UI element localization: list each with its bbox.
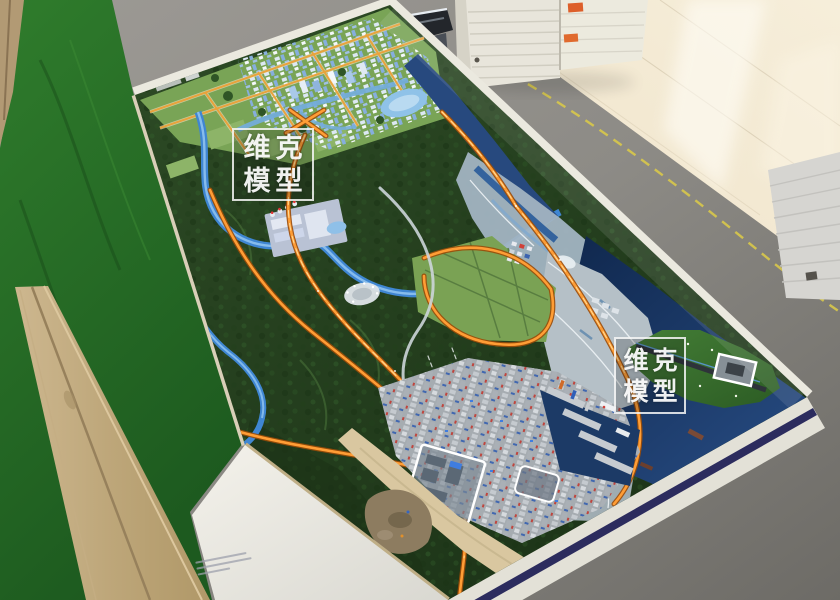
storage-crates-top	[455, 0, 648, 92]
photo-of-scale-model: 维克 模型 维克 模型	[0, 0, 840, 600]
crate-label	[564, 34, 579, 43]
crate-label	[568, 2, 584, 12]
scene-illustration	[0, 0, 840, 600]
crate-handle	[805, 271, 817, 280]
crate-handle	[475, 58, 480, 63]
